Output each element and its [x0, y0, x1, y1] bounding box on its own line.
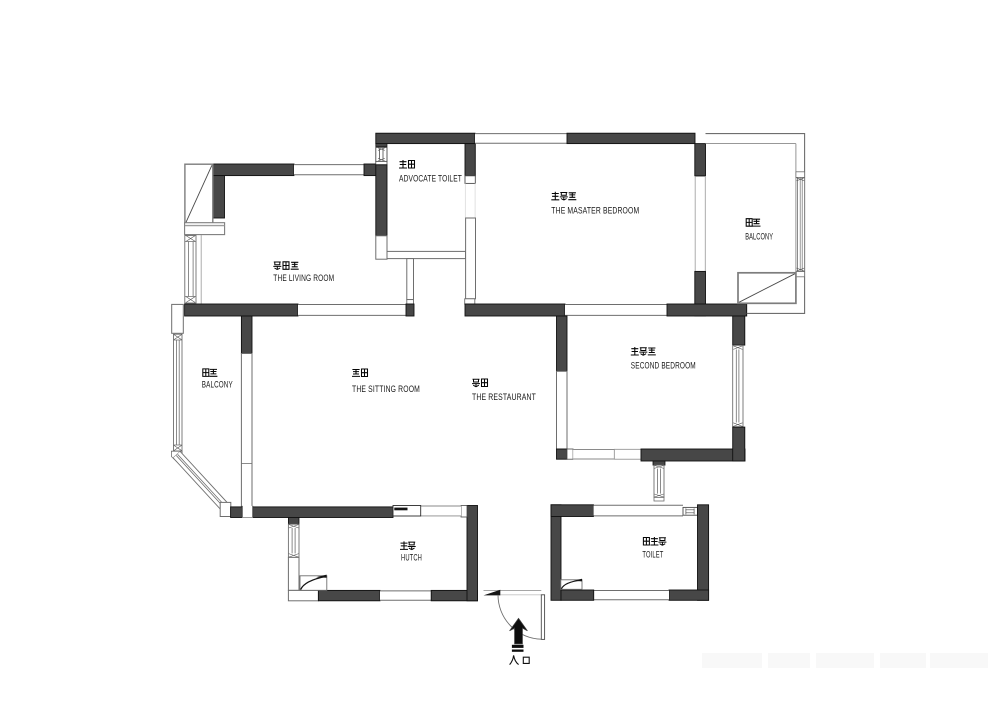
svg-text:BALCONY: BALCONY: [745, 231, 773, 241]
svg-text:BALCONY: BALCONY: [202, 379, 233, 389]
svg-text:HUTCH: HUTCH: [401, 552, 422, 562]
svg-text:THE MASATER BEDROOM: THE MASATER BEDROOM: [551, 206, 639, 216]
svg-text:SECOND BEDROOM: SECOND BEDROOM: [631, 361, 696, 371]
svg-text:THE RESTAURANT: THE RESTAURANT: [472, 392, 536, 402]
svg-text:THE SITTING ROOM: THE SITTING ROOM: [352, 384, 420, 394]
svg-text:TOILET: TOILET: [642, 550, 663, 560]
svg-text:ADVOCATE TOILET: ADVOCATE TOILET: [399, 174, 462, 184]
svg-text:THE LIVING ROOM: THE LIVING ROOM: [273, 273, 334, 283]
